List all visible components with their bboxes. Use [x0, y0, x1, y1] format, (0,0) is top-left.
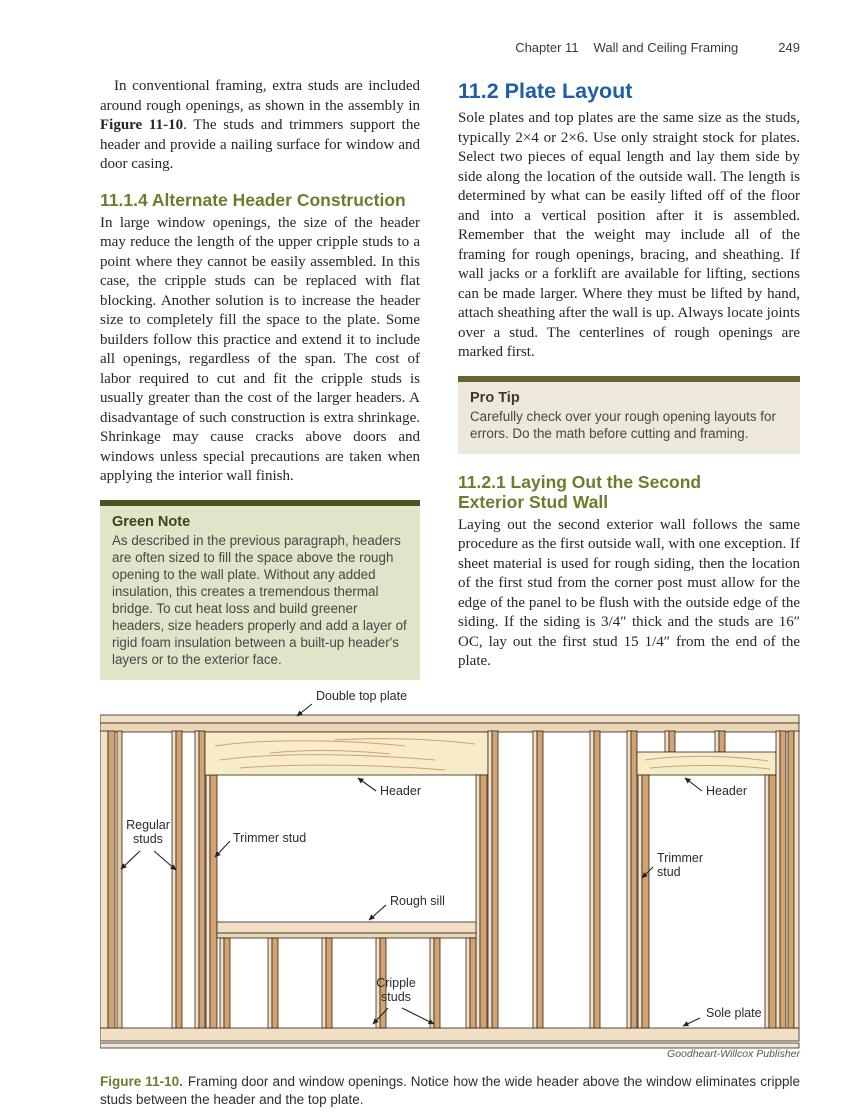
- label-trimmer-stud-door: Trimmer stud: [657, 851, 703, 879]
- pro-tip-body: Carefully check over your rough opening …: [470, 408, 788, 442]
- double-top-plate: [100, 715, 799, 732]
- figure-11-10: Double top plate Header Regular studs Tr…: [100, 688, 800, 1064]
- textbook-page: Chapter 11 Wall and Ceiling Framing 249 …: [0, 0, 862, 1112]
- paragraph-11-2-1: Laying out the second exterior wall foll…: [458, 516, 800, 672]
- door-king-stud-right: [776, 731, 786, 1028]
- label-regular-studs: Regular studs: [114, 818, 182, 846]
- green-note-box: Green Note As described in the previous …: [100, 500, 420, 680]
- window-king-stud-right: [488, 731, 498, 1028]
- figure-caption-label: Figure 11-10.: [100, 1074, 183, 1089]
- window-king-stud-left: [195, 731, 205, 1028]
- rough-sill: [217, 922, 476, 938]
- door-king-stud-left: [627, 731, 637, 1028]
- label-rough-sill: Rough sill: [390, 894, 445, 908]
- two-column-text: In conventional framing, extra studs are…: [100, 77, 800, 680]
- sole-plate: [100, 1028, 799, 1048]
- heading-11-2-1: 11.2.1 Laying Out the Second Exterior St…: [458, 472, 800, 512]
- corner-post-right: [788, 731, 799, 1028]
- label-double-top-plate: Double top plate: [316, 689, 407, 703]
- door-trimmer-right: [765, 775, 776, 1028]
- intro-paragraph: In conventional framing, extra studs are…: [100, 77, 420, 175]
- window-header: [205, 732, 488, 775]
- door-trimmer-left: [638, 775, 649, 1028]
- label-header-window: Header: [380, 784, 421, 798]
- window-trimmer-left: [206, 775, 217, 1028]
- right-column: 11.2 Plate Layout Sole plates and top pl…: [458, 77, 800, 680]
- paragraph-11-2: Sole plates and top plates are the same …: [458, 109, 800, 363]
- label-cripple-studs: Cripple studs: [363, 976, 429, 1004]
- label-trimmer-stud-window: Trimmer stud: [233, 831, 306, 845]
- intro-text-1: In conventional framing, extra studs are…: [100, 78, 420, 114]
- page-number: 249: [778, 40, 800, 55]
- chapter-number: Chapter 11: [515, 40, 578, 55]
- door-cripples-above-header: [665, 731, 725, 752]
- label-header-door: Header: [706, 784, 747, 798]
- door-header: [637, 752, 776, 775]
- green-note-title: Green Note: [112, 514, 408, 530]
- regular-studs-middle: [533, 731, 600, 1028]
- corner-post-left: [100, 731, 122, 1028]
- pro-tip-box: Pro Tip Carefully check over your rough …: [458, 376, 800, 454]
- regular-stud: [172, 731, 182, 1028]
- label-sole-plate: Sole plate: [706, 1006, 762, 1020]
- paragraph-11-1-4: In large window openings, the size of th…: [100, 214, 420, 487]
- left-column: In conventional framing, extra studs are…: [100, 77, 420, 680]
- figure-caption-text: Framing door and window openings. Notice…: [100, 1074, 800, 1107]
- heading-11-2: 11.2 Plate Layout: [458, 79, 800, 103]
- figure-reference: Figure 11-10: [100, 117, 183, 133]
- chapter-title: Wall and Ceiling Framing: [594, 40, 739, 55]
- figure-credit: Goodheart-Willcox Publisher: [667, 1048, 800, 1060]
- window-trimmer-right: [476, 775, 487, 1028]
- pro-tip-title: Pro Tip: [470, 390, 788, 406]
- running-head: Chapter 11 Wall and Ceiling Framing 249: [100, 0, 800, 55]
- figure-caption: Figure 11-10.Framing door and window ope…: [100, 1073, 800, 1109]
- cripple-studs-under-sill: [220, 938, 476, 1028]
- green-note-body: As described in the previous paragraph, …: [112, 532, 408, 668]
- heading-11-1-4: 11.1.4 Alternate Header Construction: [100, 190, 420, 210]
